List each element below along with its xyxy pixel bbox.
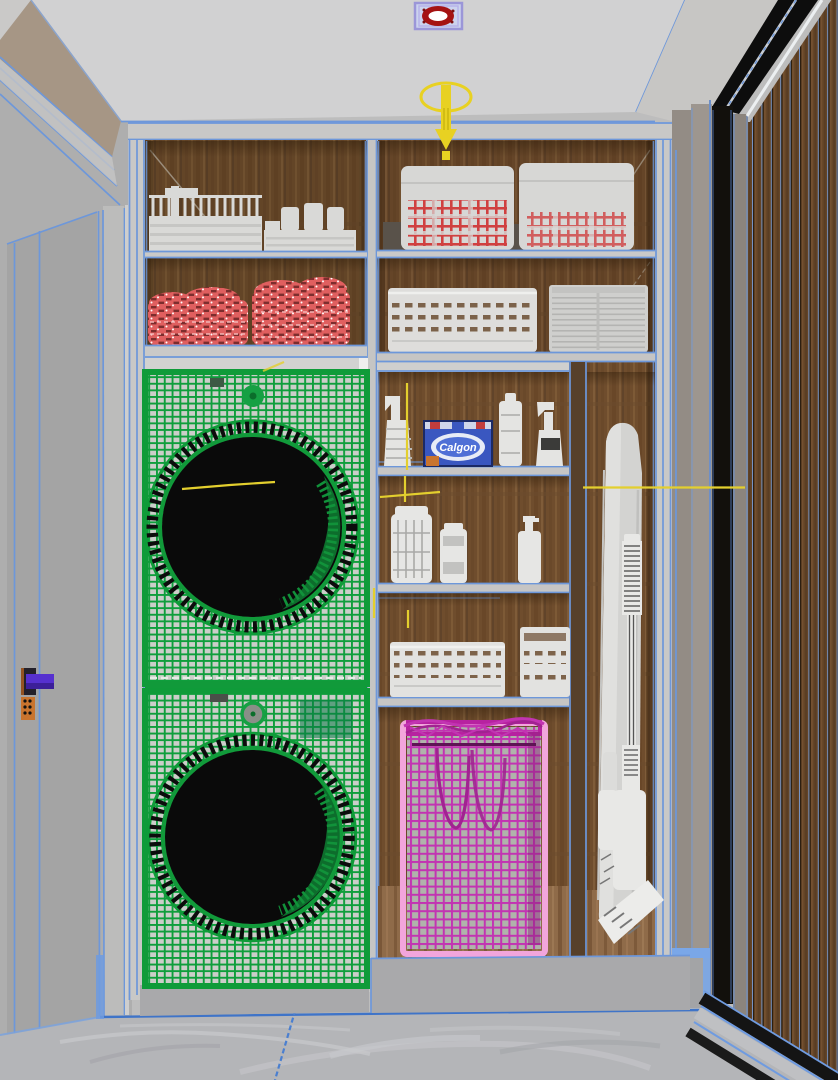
svg-text:Calgon: Calgon: [439, 442, 477, 454]
